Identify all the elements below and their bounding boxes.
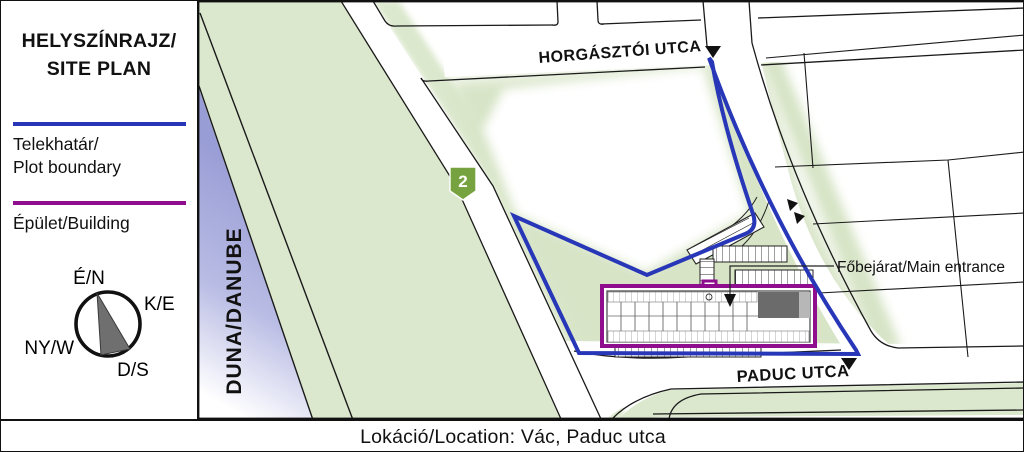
- building: [602, 281, 815, 346]
- road-north-stub: [557, 1, 598, 29]
- building-core-light: [799, 292, 810, 318]
- building-swatch: [13, 201, 186, 205]
- compass-north-label: É/N: [73, 268, 105, 289]
- river-label: DUNA/DANUBE: [223, 227, 246, 394]
- main-entrance-label: Főbejárat/Main entrance: [837, 259, 1005, 276]
- location-label: Lokáció/Location: Vác, Paduc utca: [360, 426, 666, 449]
- parking-row: [735, 270, 813, 285]
- road-badge-number: 2: [458, 172, 467, 191]
- plot-boundary-label-hu: Telekhatár/: [13, 133, 121, 156]
- site-map: Főbejárat/Main entrance 2 HORGÁSZTÓI UTC…: [198, 1, 1024, 419]
- building-core-dark: [758, 292, 799, 318]
- compass-east-label: K/E: [144, 294, 175, 315]
- page-title-line1: HELYSZÍNRAJZ/: [1, 27, 197, 55]
- building-label: Épület/Building: [13, 212, 130, 235]
- building-label-text: Épület/Building: [13, 212, 130, 235]
- plot-boundary-swatch: [13, 122, 186, 126]
- site-plan-sheet: HELYSZÍNRAJZ/ SITE PLAN Telekhatár/ Plot…: [0, 0, 1024, 452]
- compass-south-label: D/S: [117, 360, 149, 381]
- compass-west-label: NY/W: [24, 338, 74, 359]
- parking-row: [713, 246, 787, 262]
- page-title: HELYSZÍNRAJZ/ SITE PLAN: [1, 27, 197, 83]
- plot-boundary-label-en: Plot boundary: [13, 156, 121, 179]
- page-title-line2: SITE PLAN: [1, 55, 197, 83]
- footer-bar: Lokáció/Location: Vác, Paduc utca: [1, 419, 1024, 452]
- plot-boundary-label: Telekhatár/ Plot boundary: [13, 133, 121, 179]
- legend-panel: HELYSZÍNRAJZ/ SITE PLAN Telekhatár/ Plot…: [1, 1, 198, 419]
- compass: É/N K/E NY/W D/S: [1, 241, 198, 401]
